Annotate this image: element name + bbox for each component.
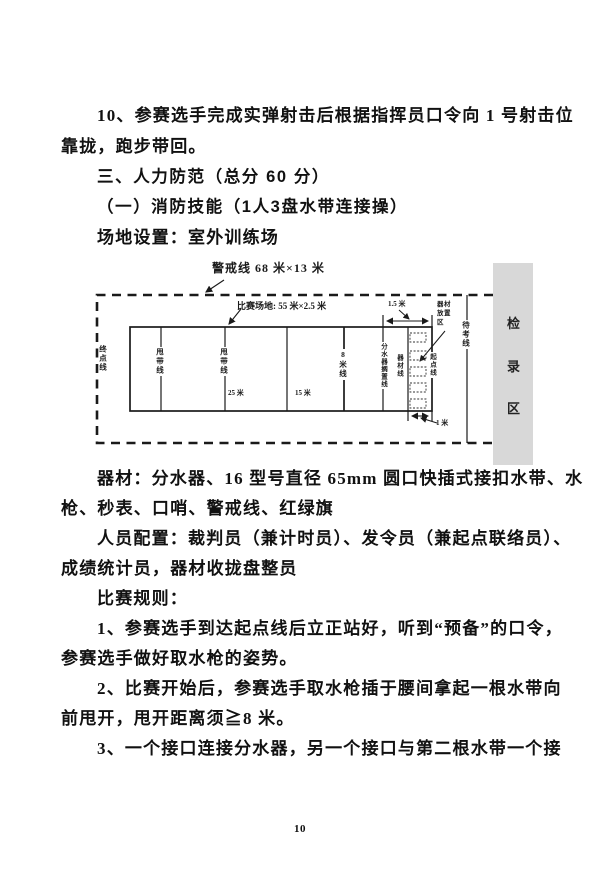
- throw-line-label-2: 甩带线: [220, 347, 228, 376]
- dim-1m-label: 1 米: [436, 420, 448, 427]
- document-page: 10、参赛选手完成实弹射击后根据指挥员口令向 1 号射击位 靠拢，跑步带回。 三…: [0, 0, 600, 879]
- segment-25m-label: 25 米: [228, 390, 244, 397]
- paragraph-line: 前甩开，甩开距离须≧8 米。: [61, 710, 295, 727]
- throw-line-label-1: 甩带线: [156, 347, 164, 376]
- warning-line-label: 警戒线 68 米×13 米: [212, 262, 325, 274]
- finish-line-label: 终点线: [99, 344, 107, 373]
- segment-15m-label: 15 米: [295, 390, 311, 397]
- dim-1-5m-label: 1.5 米: [388, 301, 406, 308]
- field-size-label: 比赛场地: 55 米×2.5 米: [237, 302, 326, 311]
- paragraph-line: 3、一个接口连接分水器，另一个接口与第二根水带一个接: [61, 740, 562, 757]
- paragraph-line: 1、参赛选手到达起点线后立正站好，听到“预备”的口令，: [61, 620, 563, 637]
- paragraph-line: 比赛规则：: [61, 590, 188, 607]
- paragraph-line: 2、比赛开始后，参赛选手取水枪插于腰间拿起一根水带向: [61, 680, 562, 697]
- paragraph-line: 参赛选手做好取水枪的姿势。: [61, 650, 298, 667]
- paragraph-line: 人员配置：裁判员（兼计时员）、发令员（兼起点联络员）、: [61, 530, 571, 547]
- paragraph-line: 器材：分水器、16 型号直径 65mm 圆口快插式接扣水带、水: [61, 470, 583, 487]
- equipment-line-label: 器材线: [395, 353, 402, 379]
- paragraph-line: 成绩统计员，器材收拢盘整员: [61, 560, 298, 577]
- page-number: 10: [0, 823, 600, 835]
- equipment-area-label: 器材放置区: [437, 301, 452, 327]
- paragraph-line: 枪、秒表、口哨、警戒线、红绿旗: [61, 500, 334, 517]
- waiting-line-label: 待考线: [462, 320, 470, 349]
- divider-placement-line-label: 分水器搁置线: [379, 342, 386, 389]
- eight-meter-line-label: 8米线: [339, 349, 347, 380]
- start-line-label: 起点线: [428, 352, 435, 378]
